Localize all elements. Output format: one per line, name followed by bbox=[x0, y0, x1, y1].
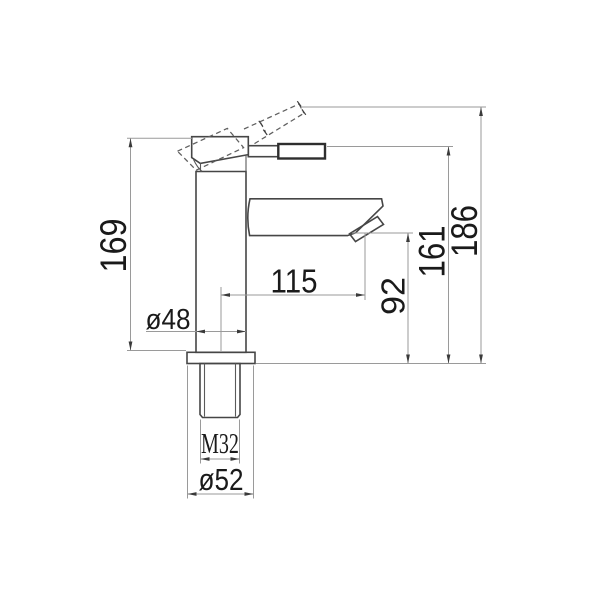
arrow-left-icon bbox=[221, 293, 230, 297]
arrow-left-icon bbox=[196, 330, 205, 334]
dimension-reach-115: 115 bbox=[221, 234, 365, 352]
phantom-tip-tick-lower bbox=[302, 109, 306, 114]
faucet-technical-drawing: 169 ø48 115 92 161 186 bbox=[0, 0, 600, 600]
dimension-label-reach: 115 bbox=[271, 263, 318, 300]
dimension-label-overall-height: 186 bbox=[444, 205, 485, 257]
dimension-label-height: 169 bbox=[93, 219, 134, 273]
phantom-handle-top-edge bbox=[244, 104, 299, 129]
arrow-right-icon bbox=[245, 492, 254, 496]
phantom-handle-bottom-edge bbox=[255, 113, 305, 143]
dimension-outlet-height-92: 92 bbox=[352, 233, 413, 364]
arrow-right-icon bbox=[356, 293, 365, 297]
arrow-right-icon bbox=[237, 330, 246, 334]
drawing-sheet: 169 ø48 115 92 161 186 bbox=[0, 0, 600, 600]
arrow-up-icon bbox=[406, 233, 410, 242]
arrow-up-icon bbox=[479, 107, 483, 116]
dimension-thread-m32: M32 bbox=[201, 420, 240, 464]
arrow-down-icon bbox=[129, 342, 133, 351]
phantom-tip-tick-upper bbox=[297, 101, 301, 106]
dimension-handle-height-161: 161 bbox=[327, 147, 453, 364]
handle-raised-position bbox=[178, 101, 306, 170]
phantom-head-outline bbox=[178, 128, 244, 170]
arrow-down-icon bbox=[479, 355, 483, 364]
dimension-label-outlet-height: 92 bbox=[375, 277, 412, 315]
dimension-label-base-diameter: ø52 bbox=[199, 462, 244, 497]
arrow-up-icon bbox=[447, 147, 451, 156]
handle-grip bbox=[278, 144, 325, 159]
dimension-label-body-diameter: ø48 bbox=[146, 304, 191, 336]
spout bbox=[248, 199, 383, 236]
spout-aerator bbox=[350, 217, 384, 242]
handle-rod bbox=[248, 146, 278, 157]
dimension-label-thread: M32 bbox=[201, 429, 239, 460]
arrow-up-icon bbox=[129, 138, 133, 147]
arrow-down-icon bbox=[447, 355, 451, 364]
base-flange bbox=[187, 352, 255, 363]
arrow-left-icon bbox=[188, 492, 197, 496]
threaded-stem bbox=[200, 364, 240, 418]
arrow-down-icon bbox=[406, 355, 410, 364]
